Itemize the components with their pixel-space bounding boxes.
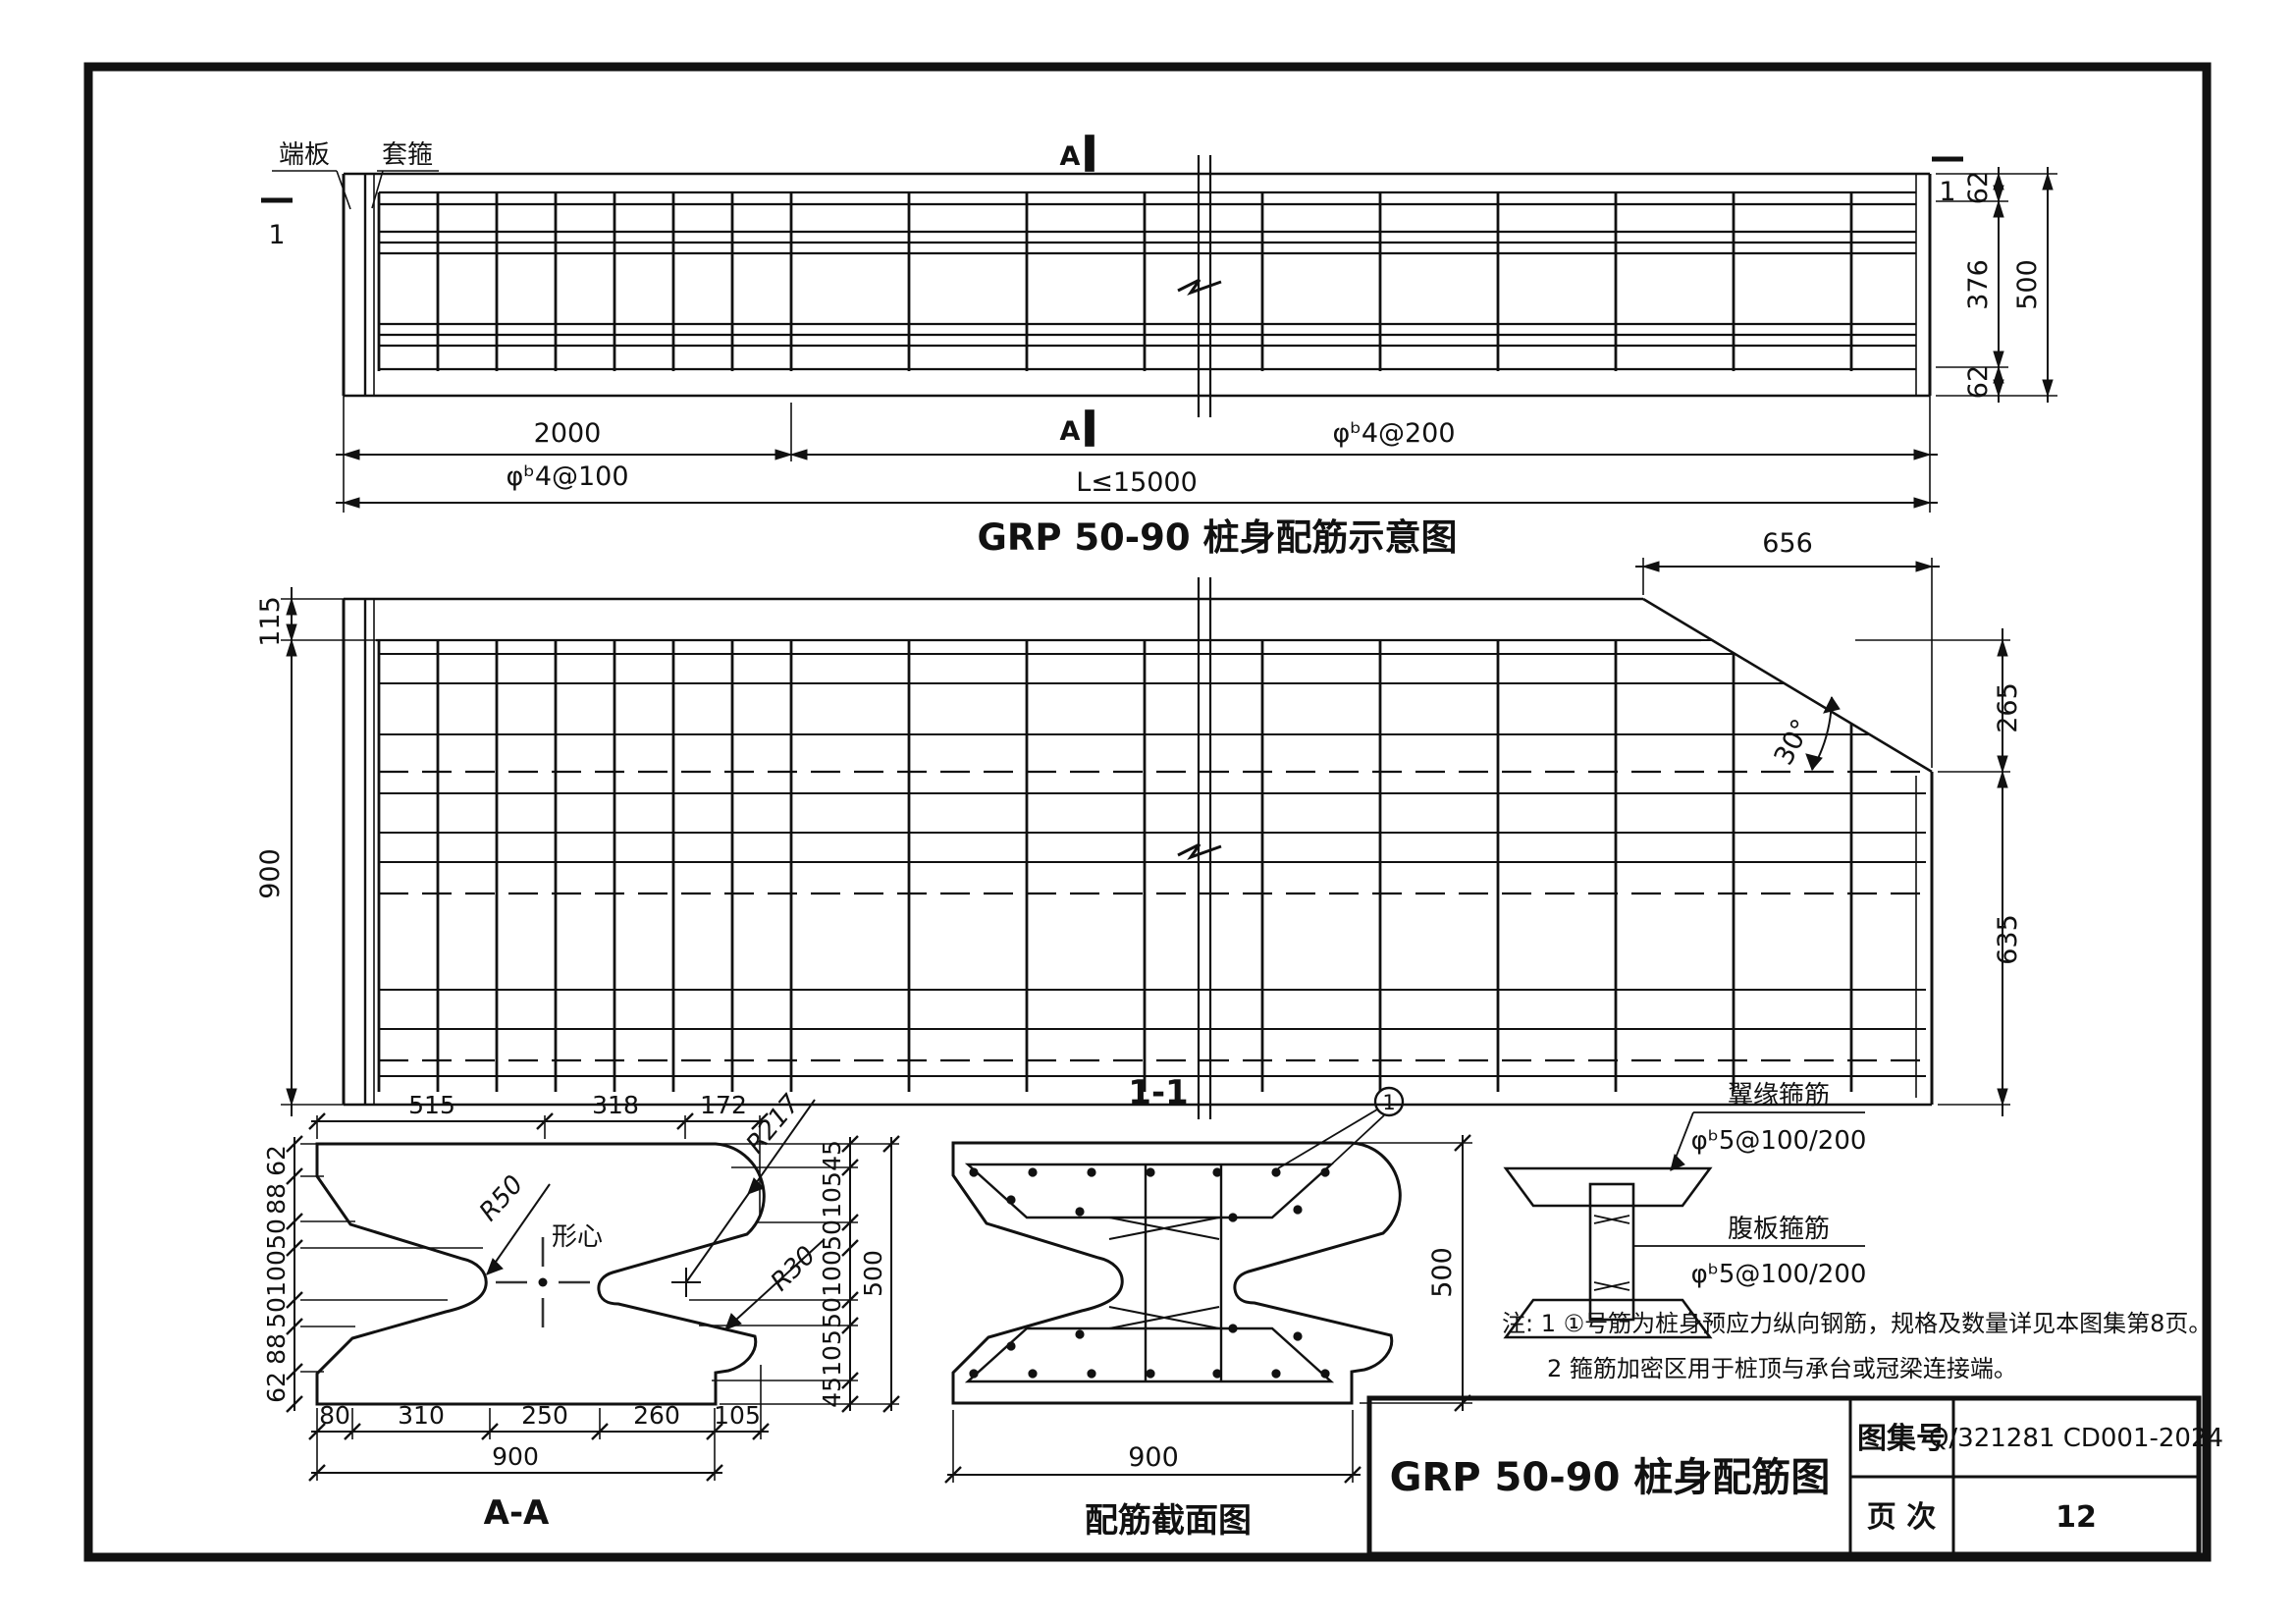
aa-right-105b: 105 [818, 1329, 846, 1377]
section-a-letter-bottom: A [1060, 416, 1081, 447]
s11-dim-900: 900 [1128, 1442, 1179, 1473]
s11-dim-500: 500 [1427, 1247, 1458, 1298]
drawing-title: GRP 50-90 桩身配筋图 [1390, 1455, 1831, 1500]
atlas-number-value: Q/321281 CD001-2024 [1929, 1424, 2223, 1453]
dim-right-mid: 376 [1963, 259, 1994, 310]
section1-mark-left: 1 [268, 220, 285, 250]
aa-right-45b: 45 [818, 1377, 846, 1408]
web-hoop-spec: φᵇ5@100/200 [1691, 1260, 1867, 1289]
note-line-1: 注: 1 ①号筋为桩身预应力纵向钢筋，规格及数量详见本图集第8页。 [1502, 1310, 2212, 1337]
aa-left-62t: 62 [262, 1145, 291, 1176]
stirrup-lines [379, 192, 1851, 371]
flange-hoop-spec: φᵇ5@100/200 [1691, 1126, 1867, 1156]
end-plate-label: 端板 [279, 140, 330, 170]
page-number: 12 [2056, 1500, 2097, 1535]
section-a-bar-bottom [1086, 410, 1094, 446]
aa-top-318: 318 [592, 1091, 639, 1119]
section-11 [947, 1088, 1472, 1483]
aa-bot-250: 250 [521, 1401, 568, 1430]
dim-total-length: L≤15000 [1076, 467, 1198, 498]
aa-bot-310: 310 [398, 1401, 445, 1430]
dim-right-265: 265 [1993, 682, 2023, 733]
rebar-dots [969, 1167, 1329, 1378]
aa-right-500: 500 [859, 1250, 887, 1297]
plan-stirrups [379, 640, 1851, 1092]
section-a-bar-top [1086, 135, 1094, 171]
dim-plan-900: 900 [255, 848, 286, 899]
dim-right-bottom: 62 [1963, 365, 1994, 399]
aa-right-50t: 50 [818, 1219, 846, 1251]
dim-right-635: 635 [1993, 914, 2023, 965]
section1-mark-right: 1 [1939, 177, 1955, 207]
aa-top-515: 515 [408, 1091, 455, 1119]
aa-left-50b: 50 [262, 1297, 291, 1328]
aa-left-88t: 88 [262, 1183, 291, 1215]
aa-right-105t: 105 [818, 1171, 846, 1218]
sparse-stirrup-spec: φᵇ4@200 [1332, 418, 1455, 449]
elevation-view [344, 155, 1930, 417]
radius-r50: R50 [474, 1170, 530, 1227]
page-label: 页 次 [1867, 1500, 1936, 1535]
flange-hoop-shape [1506, 1168, 1710, 1206]
aa-right-100: 100 [818, 1250, 846, 1297]
section-aa-title: A-A [484, 1493, 550, 1533]
aa-top-172: 172 [700, 1091, 747, 1119]
section-11-caption: 配筋截面图 [1085, 1501, 1252, 1541]
aa-right-45t: 45 [818, 1140, 846, 1171]
plan-bars [379, 640, 1926, 1076]
section-11-title: 1-1 [1128, 1073, 1188, 1112]
dim-right-top: 62 [1963, 171, 1994, 204]
section-a-letter-top: A [1060, 141, 1081, 172]
centroid-label: 形心 [552, 1222, 603, 1252]
aa-left-88b: 88 [262, 1333, 291, 1365]
section-aa [294, 1100, 899, 1481]
web-hoop-label: 腹板箍筋 [1728, 1215, 1830, 1244]
note-line-2: 2 箍筋加密区用于桩顶与承台或冠梁连接端。 [1547, 1355, 2017, 1382]
dim-right-total: 500 [2012, 259, 2043, 310]
aa-left-50t: 50 [262, 1218, 291, 1250]
dim-plan-115: 115 [255, 596, 286, 647]
drawing-canvas: 端板 套箍 1 1 A A 2000 φᵇ4@100 φᵇ4@200 L≤150… [0, 0, 2296, 1624]
aa-bot-900: 900 [492, 1442, 539, 1471]
aa-bot-260: 260 [633, 1401, 680, 1430]
flange-hoop-label: 翼缘箍筋 [1728, 1081, 1830, 1110]
plan-view [281, 558, 2010, 1119]
collar-label: 套箍 [382, 140, 433, 170]
rebar-tag-number: 1 [1382, 1091, 1395, 1114]
longitudinal-bars [379, 192, 1916, 369]
dim-tip-656: 656 [1762, 528, 1813, 559]
aa-left-100: 100 [262, 1250, 291, 1297]
dense-stirrup-spec: φᵇ4@100 [506, 461, 628, 492]
elevation-title: GRP 50-90 桩身配筋示意图 [977, 516, 1457, 559]
drawing-sheet: 端板 套箍 1 1 A A 2000 φᵇ4@100 φᵇ4@200 L≤150… [0, 0, 2296, 1624]
aa-right-50b: 50 [818, 1297, 846, 1328]
web-cross-ties [1109, 1218, 1219, 1328]
aa-left-62b: 62 [262, 1372, 291, 1403]
dim-dense-zone: 2000 [534, 418, 602, 449]
